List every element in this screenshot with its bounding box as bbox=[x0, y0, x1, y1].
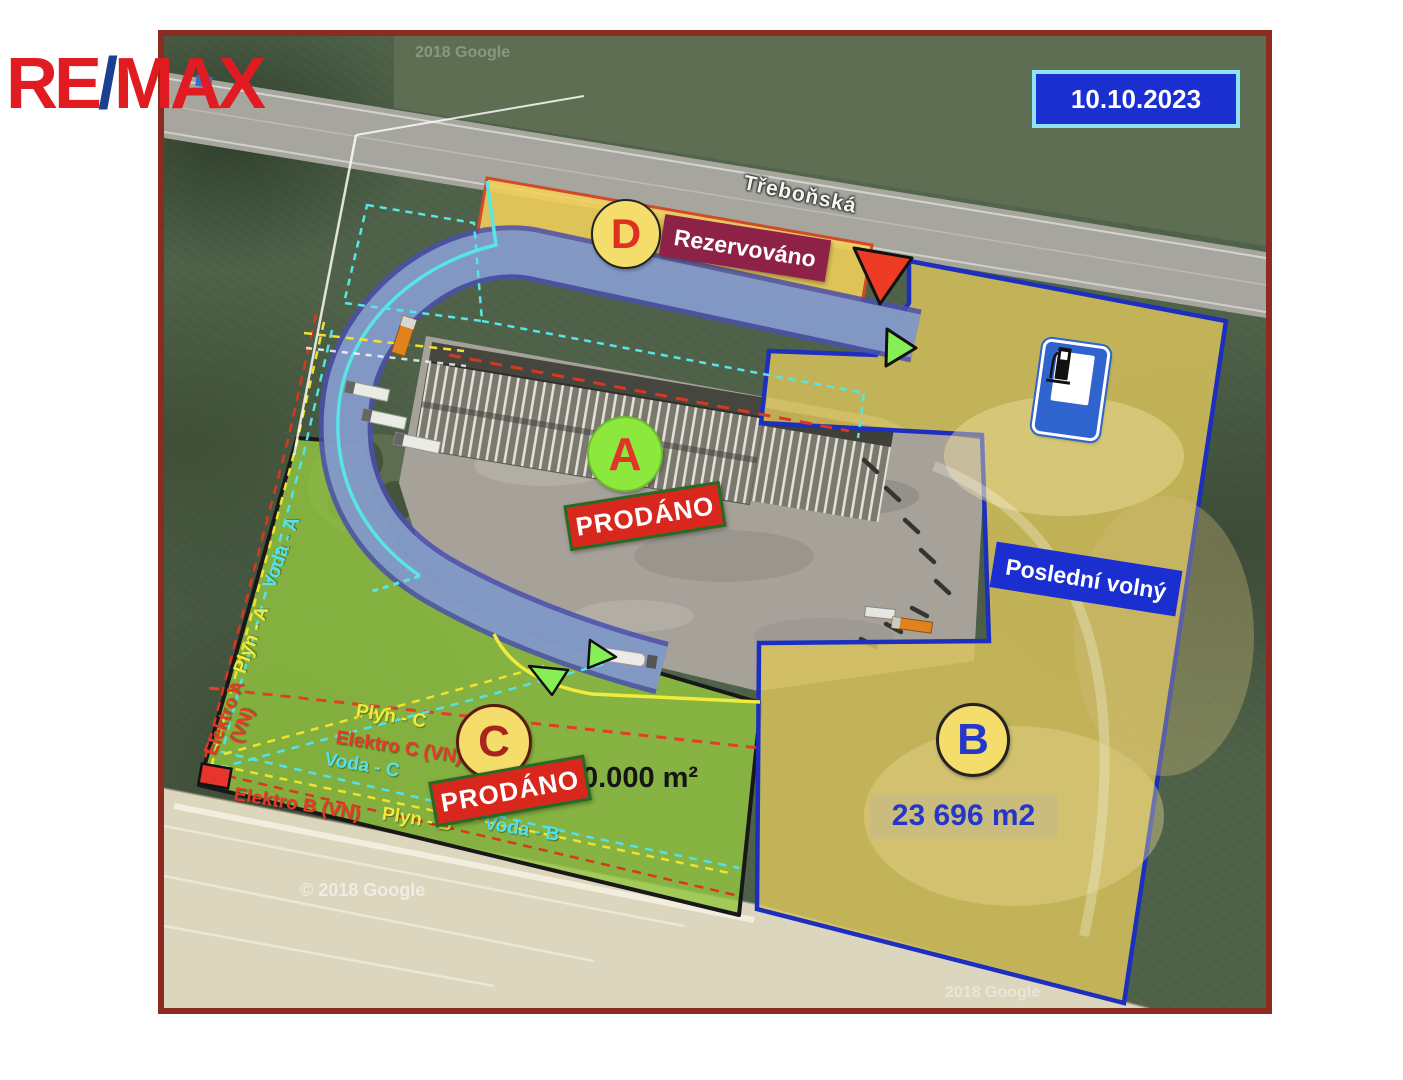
satellite-map: 10.10.2023 Třeboňská 2018 Google © 2018 … bbox=[158, 30, 1272, 1014]
plot-d-marker: D bbox=[591, 199, 661, 269]
remax-logo-slash: / bbox=[98, 44, 114, 124]
plot-a-marker: A bbox=[587, 416, 663, 492]
plot-b-area-label: 23 696 m2 bbox=[870, 793, 1057, 839]
google-watermark-bottom-right: 2018 Google bbox=[945, 984, 1040, 1002]
remax-logo: RE/MAX bbox=[6, 48, 262, 120]
real-estate-flyer: 10.10.2023 Třeboňská 2018 Google © 2018 … bbox=[0, 0, 1403, 1080]
google-watermark-top: 2018 Google bbox=[415, 44, 510, 62]
date-badge: 10.10.2023 bbox=[1032, 70, 1240, 128]
plot-c-area-label: 0.000 m² bbox=[582, 762, 698, 795]
fuel-pump-icon bbox=[1050, 351, 1095, 406]
remax-logo-re: RE bbox=[6, 44, 98, 124]
remax-logo-max: MAX bbox=[114, 44, 262, 124]
transformer-box bbox=[198, 764, 231, 789]
plot-b-marker: B bbox=[936, 703, 1010, 777]
fuel-station-sign bbox=[1031, 338, 1112, 443]
google-watermark-bottom-left: © 2018 Google bbox=[300, 880, 425, 901]
